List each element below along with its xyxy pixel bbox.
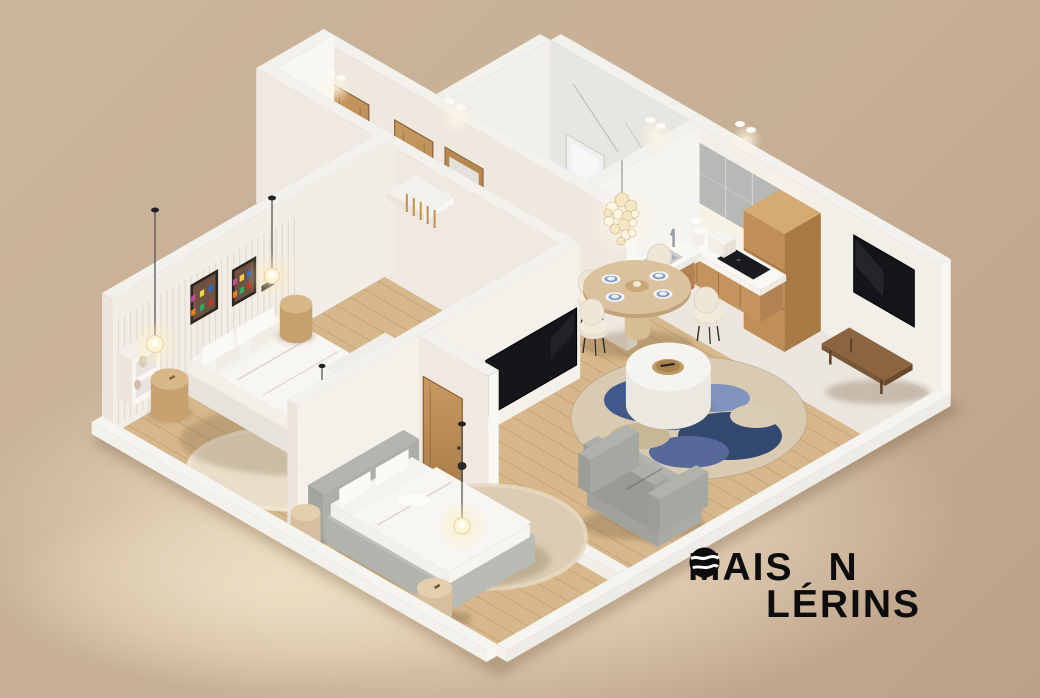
- coffee-table: [622, 343, 714, 430]
- apartment-isometric-render: [0, 0, 1040, 698]
- poster-canvas: MAISN LÉRINS: [0, 0, 1040, 698]
